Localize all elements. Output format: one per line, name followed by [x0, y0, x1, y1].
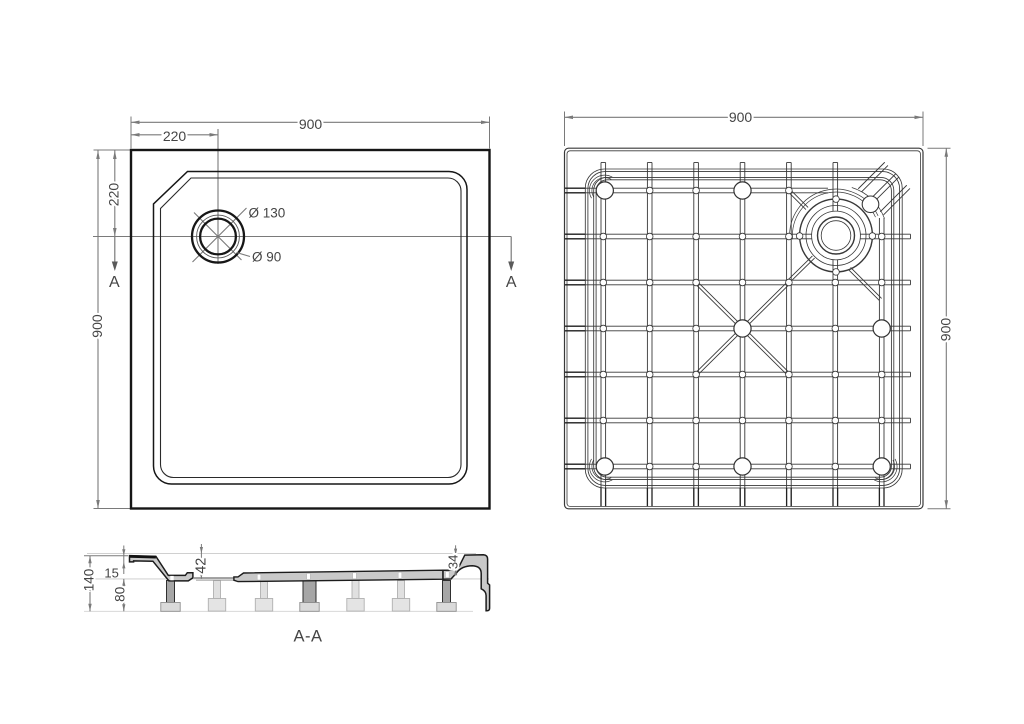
svg-text:15: 15 [104, 565, 118, 580]
svg-text:80: 80 [112, 587, 127, 602]
svg-text:42: 42 [194, 558, 210, 574]
svg-text:220: 220 [106, 183, 122, 207]
svg-text:900: 900 [729, 109, 753, 125]
svg-text:A-A: A-A [293, 627, 322, 645]
svg-text:34: 34 [445, 555, 460, 569]
svg-text:Ø 90: Ø 90 [252, 249, 281, 264]
svg-text:220: 220 [163, 128, 187, 144]
svg-text:A: A [109, 274, 120, 291]
svg-text:A: A [506, 274, 517, 291]
svg-text:900: 900 [299, 116, 323, 132]
svg-text:140: 140 [82, 569, 97, 592]
svg-text:900: 900 [938, 318, 954, 342]
svg-text:900: 900 [89, 314, 105, 338]
svg-text:Ø 130: Ø 130 [249, 205, 286, 220]
